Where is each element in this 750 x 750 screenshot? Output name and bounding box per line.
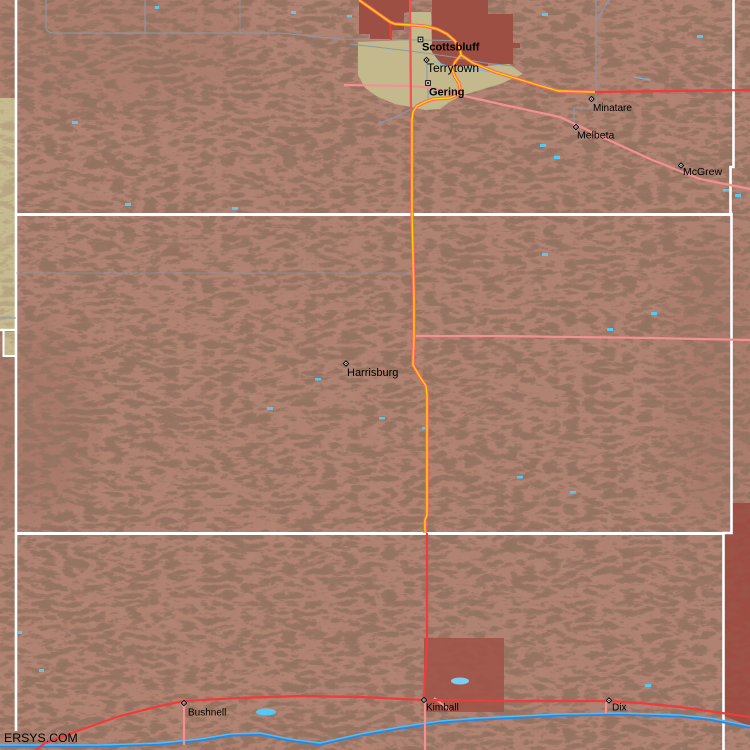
svg-text:Terrytown: Terrytown	[427, 61, 479, 75]
svg-text:Harrisburg: Harrisburg	[347, 367, 398, 379]
svg-text:Scottsbluff: Scottsbluff	[422, 41, 480, 53]
svg-text:Minatare: Minatare	[593, 103, 632, 114]
svg-text:Bushnell: Bushnell	[188, 708, 226, 719]
svg-text:McGrew: McGrew	[683, 166, 723, 178]
svg-text:ERSYS.COM: ERSYS.COM	[4, 731, 78, 745]
svg-text:Melbeta: Melbeta	[577, 130, 615, 142]
svg-text:Kimball: Kimball	[426, 703, 459, 714]
svg-text:Dix: Dix	[612, 703, 626, 714]
svg-text:Gering: Gering	[429, 86, 464, 98]
